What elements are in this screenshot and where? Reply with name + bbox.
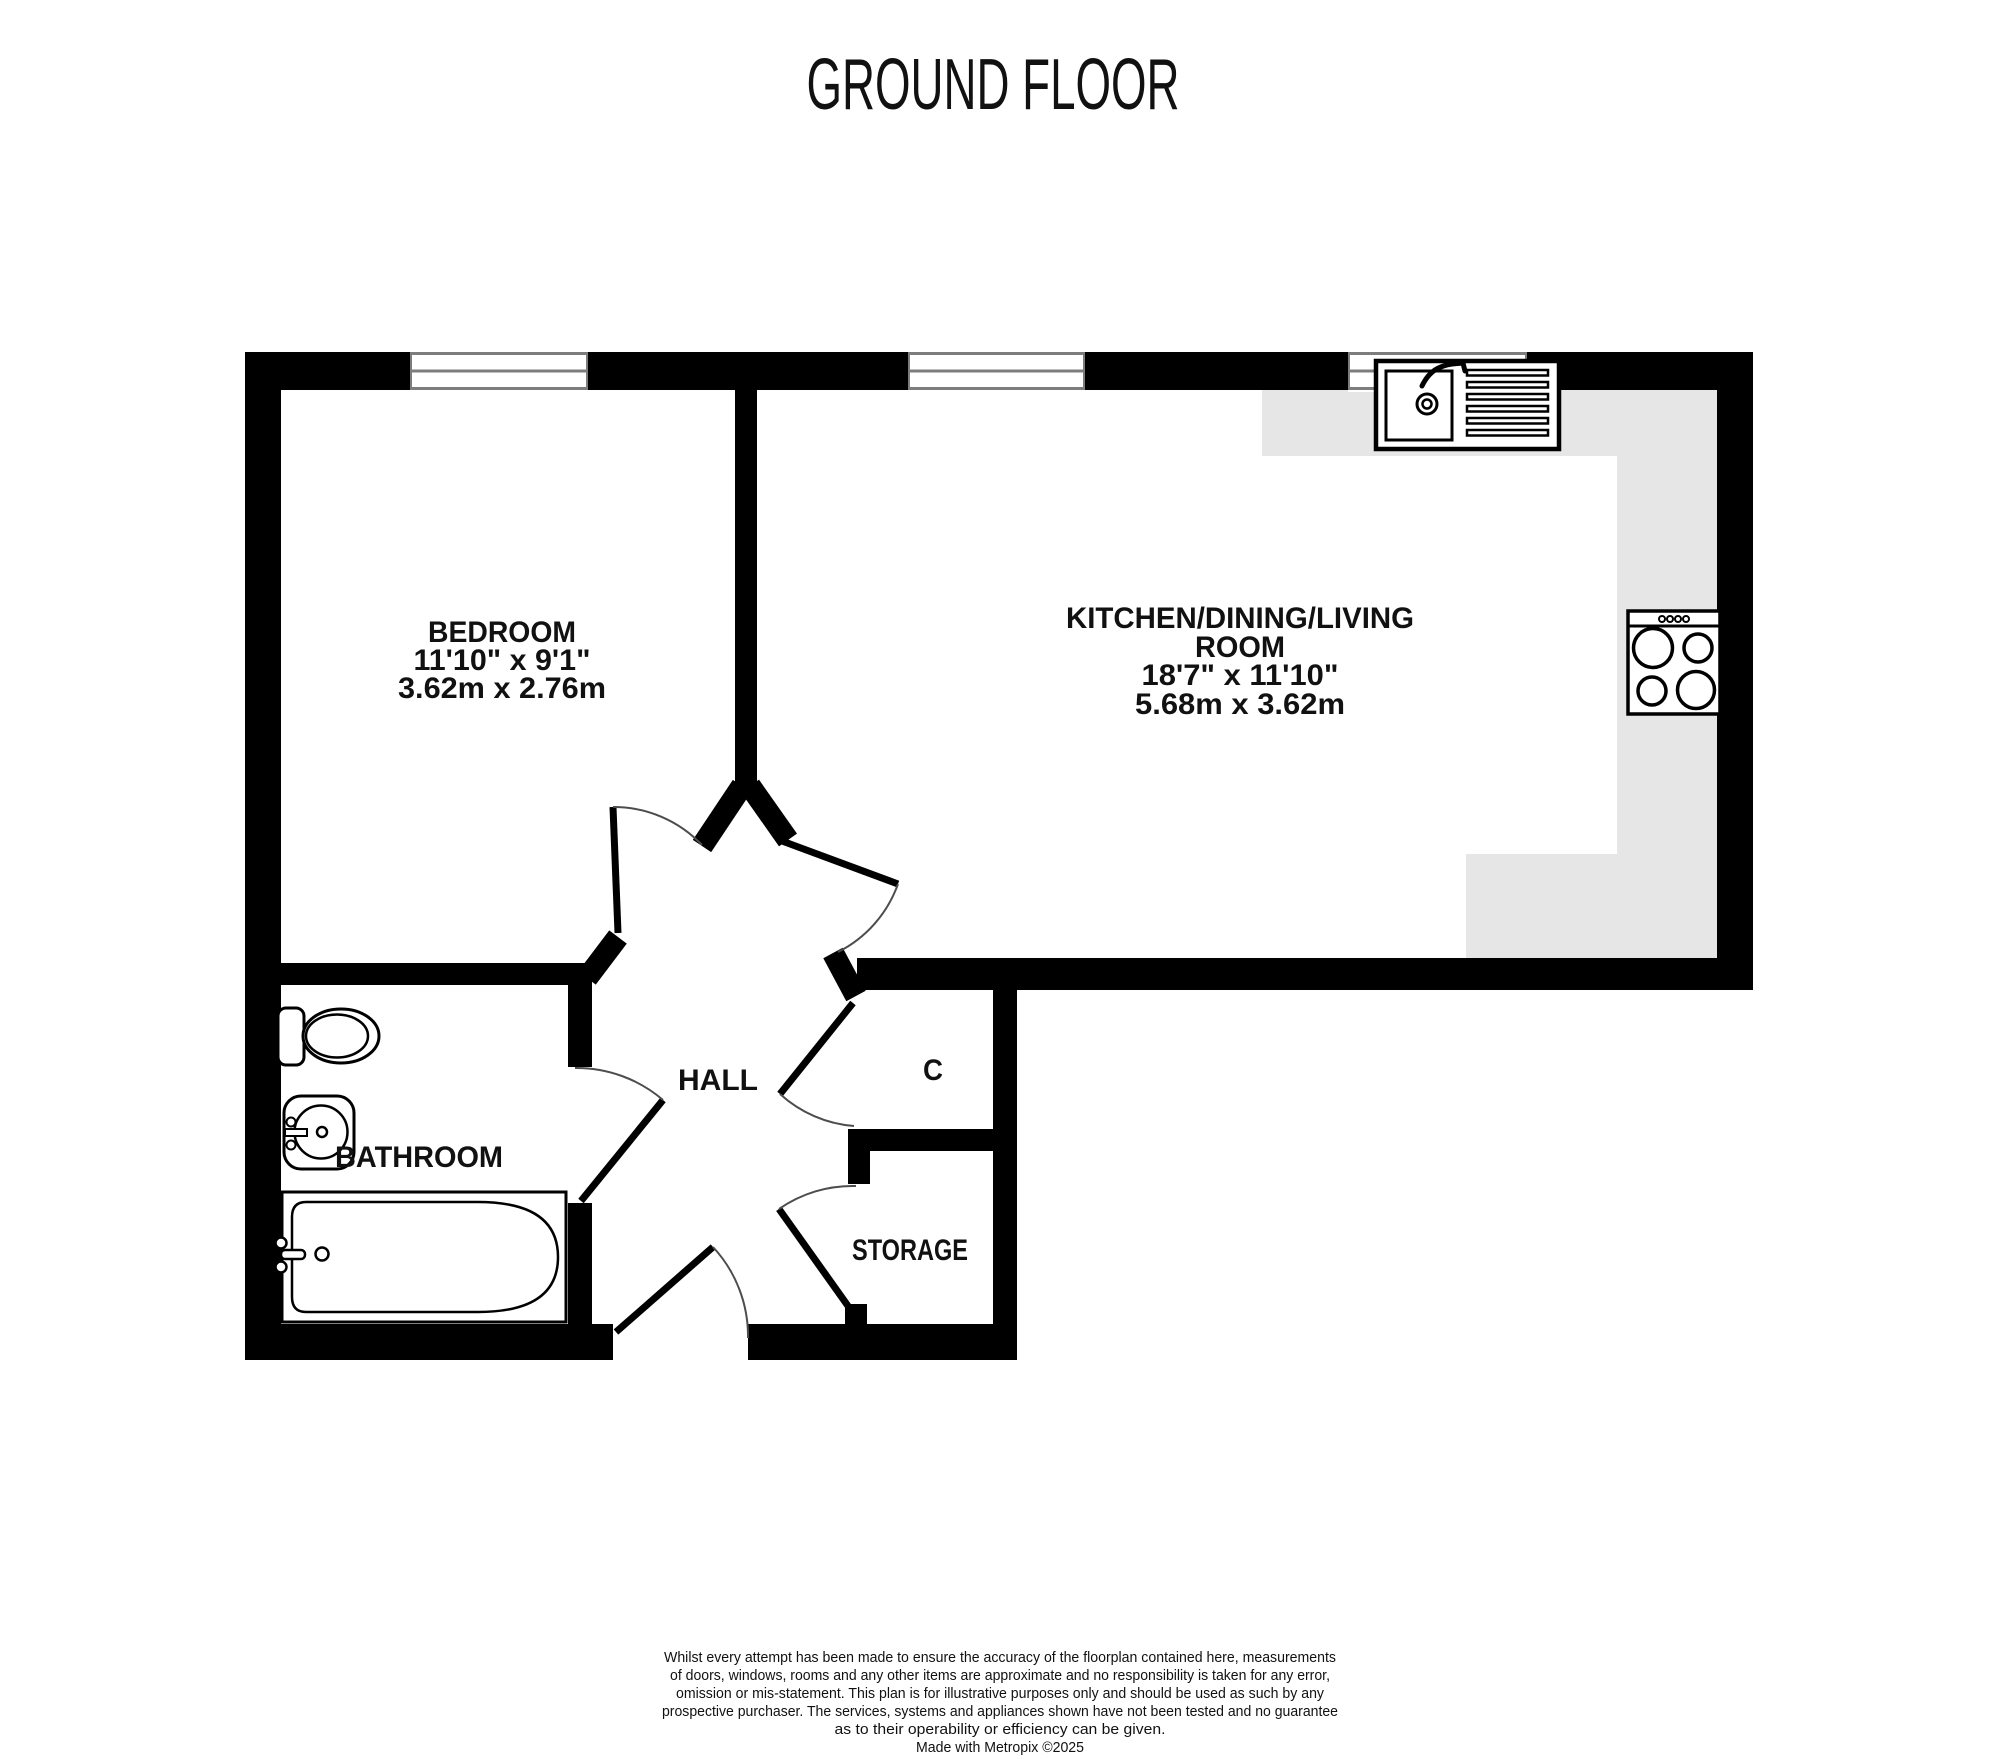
toilet-cistern <box>278 1008 304 1065</box>
kitchen-sink-icon <box>1376 361 1559 449</box>
door-swing-arc <box>713 1247 748 1338</box>
wall-bathroom-top <box>281 963 592 985</box>
wall-right <box>1717 352 1753 990</box>
bathroom-door <box>575 1068 663 1201</box>
wall-cupboard-storage-stub <box>848 1129 870 1184</box>
cupboard-label: C <box>923 1054 943 1087</box>
door-leaf <box>782 841 898 884</box>
floorplan-canvas: GROUND FLOOR <box>0 0 2000 1759</box>
door-post-hall-right-arm <box>750 786 788 840</box>
bath-tap-cold <box>276 1262 287 1273</box>
kitchen-dims-metric: 5.68m x 3.62m <box>1135 688 1345 721</box>
cupboard-door <box>780 1003 854 1126</box>
bath-tap-hot <box>276 1238 287 1249</box>
door-leaf <box>616 1247 713 1332</box>
door-leaf <box>581 1100 663 1201</box>
basin-tap-spout <box>285 1129 307 1136</box>
room-labels: BEDROOM 11'10" x 9'1" 3.62m x 2.76m KITC… <box>335 602 1414 1267</box>
bath-tub-inner <box>292 1202 558 1312</box>
wall-cupboard-right <box>993 958 1017 1360</box>
metropix-credit: Made with Metropix ©2025 <box>916 1739 1084 1756</box>
disclaimer-line: as to their operability or efficiency ca… <box>835 1721 1166 1738</box>
wall-bottom-right <box>748 1324 1017 1360</box>
hall-label: HALL <box>678 1064 758 1097</box>
disclaimer-line: omission or mis-statement. This plan is … <box>676 1685 1324 1702</box>
disclaimer-line: of doors, windows, rooms and any other i… <box>670 1667 1330 1684</box>
disclaimer-line: Whilst every attempt has been made to en… <box>664 1649 1336 1666</box>
wall-bottom-left <box>245 1324 613 1360</box>
storage-door <box>779 1186 856 1313</box>
door-swing-arc <box>613 807 702 845</box>
sink-drain-inner <box>1423 400 1432 409</box>
door-leaf <box>613 807 618 933</box>
toilet-bowl-inner <box>306 1015 368 1058</box>
hob-icon <box>1628 611 1720 714</box>
door-leaf <box>779 1209 853 1313</box>
page-title: GROUND FLOOR <box>807 45 1180 125</box>
door-swing-arc <box>779 1186 856 1209</box>
toilet-icon <box>278 1008 379 1065</box>
living-room-door <box>782 841 898 952</box>
door-post-hall-left-arm <box>702 786 742 846</box>
bathtub-icon <box>276 1192 567 1322</box>
door-leaf <box>780 1003 853 1094</box>
door-swing-arc <box>575 1068 663 1100</box>
floorplan-page: GROUND FLOOR <box>0 0 2000 1759</box>
door-post-hall-kitchen <box>833 953 856 996</box>
basin-tap-hot <box>287 1118 296 1127</box>
wall-bathroom-hall-upper <box>568 985 592 1067</box>
wall-kitchen-bottom <box>857 958 1753 990</box>
windows <box>410 350 1527 392</box>
counter-bottom <box>1466 854 1617 958</box>
wall-bedroom-kitchen-divider <box>735 390 757 792</box>
disclaimer-line: prospective purchaser. The services, sys… <box>662 1703 1338 1720</box>
bath-drain <box>316 1248 329 1261</box>
basin-drain <box>317 1127 327 1137</box>
basin-tap-cold <box>287 1141 296 1150</box>
disclaimer: Whilst every attempt has been made to en… <box>662 1649 1338 1756</box>
door-swing-arc <box>780 1094 854 1126</box>
bath-spout <box>281 1250 305 1259</box>
window-bedroom <box>410 350 588 392</box>
front-door <box>616 1247 748 1338</box>
wall-left <box>245 352 281 1360</box>
bathroom-label: BATHROOM <box>335 1141 503 1174</box>
door-swing-arc <box>838 884 898 952</box>
door-post-bathroom-corner <box>587 937 618 978</box>
storage-label: STORAGE <box>852 1234 968 1267</box>
bedroom-dims-metric: 3.62m x 2.76m <box>398 672 606 705</box>
window-kitchen-left <box>908 350 1085 392</box>
bedroom-door <box>613 807 702 933</box>
wall-bathroom-hall-lower <box>568 1203 592 1324</box>
